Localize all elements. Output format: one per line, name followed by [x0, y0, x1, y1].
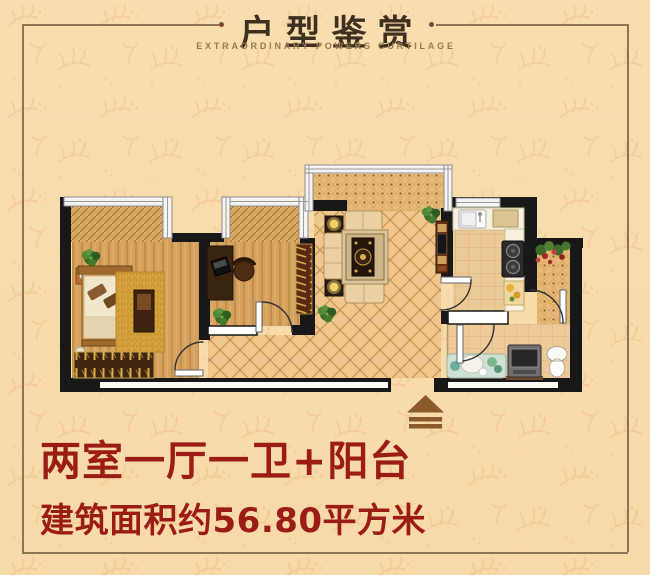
fruit-basket	[504, 281, 524, 305]
layout-headline: 两室一厅一卫+阳台	[40, 427, 411, 487]
entrance-arrow-icon	[407, 395, 444, 429]
study-bay-window-floor	[229, 206, 300, 242]
bath-vanity	[447, 354, 506, 378]
kitchen-sink	[459, 210, 486, 228]
tv	[438, 234, 447, 254]
area-headline: 建筑面积约56.80平方米	[40, 493, 426, 542]
tv-cabinet	[436, 221, 448, 273]
coffee-table	[352, 238, 374, 276]
striped-bench	[74, 352, 154, 378]
stove	[502, 241, 524, 277]
page: 户型鉴赏 EXTRAORDINARY POWERS CURTILAGE	[0, 0, 650, 575]
bedroom-rug	[116, 272, 164, 352]
cutting-board	[493, 210, 518, 227]
bedroom-bay-window-floor	[71, 206, 163, 242]
bookshelf	[296, 244, 312, 314]
washing-machine	[506, 345, 543, 380]
floor-plan	[0, 0, 650, 575]
desk-chair	[233, 259, 255, 281]
